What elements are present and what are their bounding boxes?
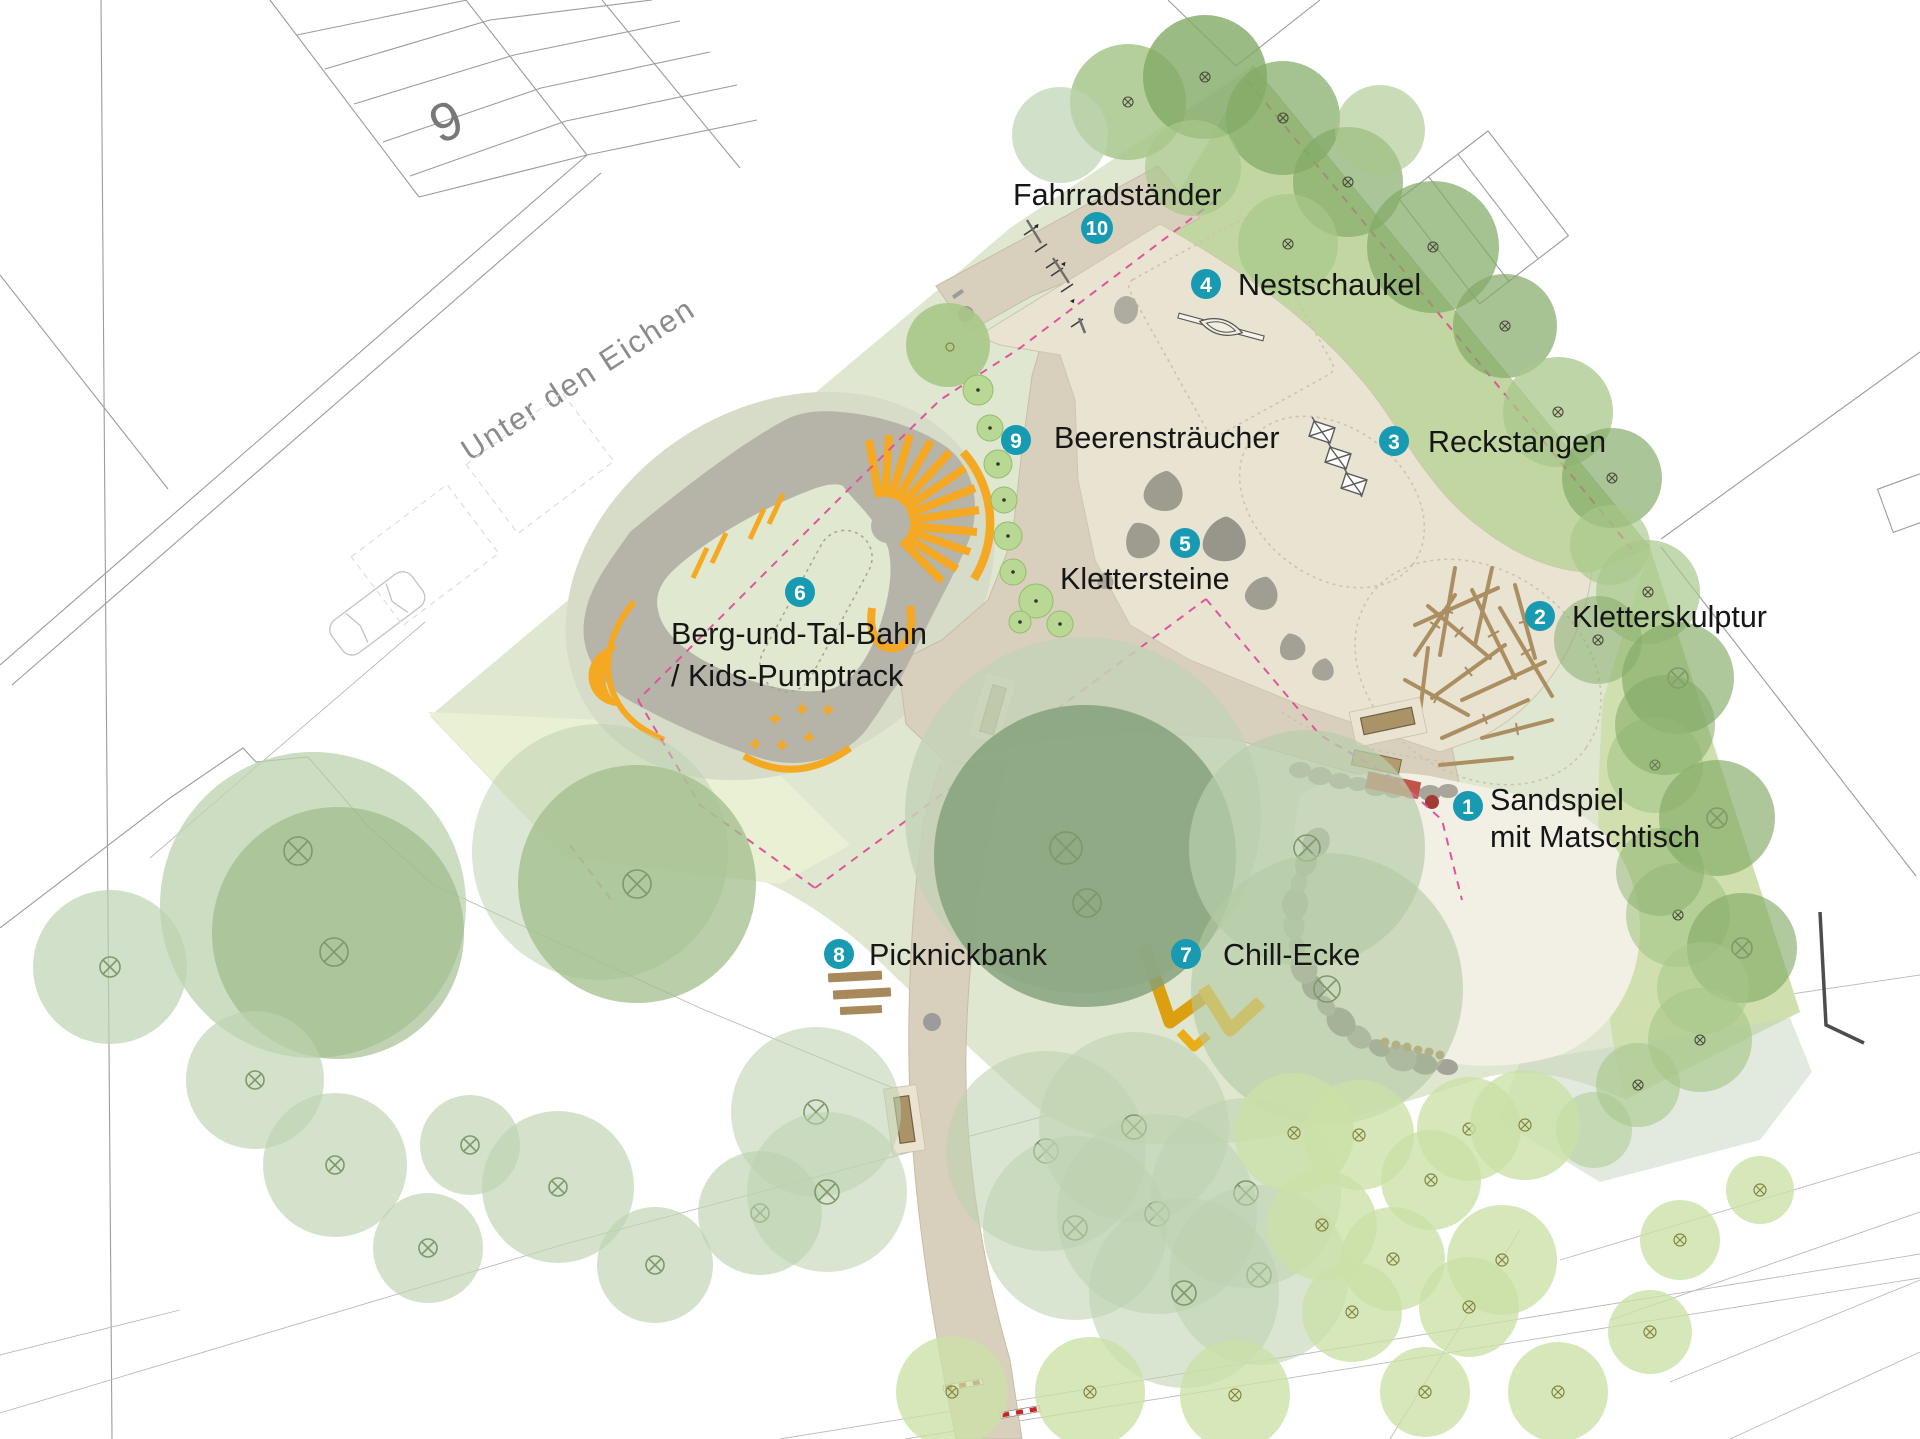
- svg-text:Fahrradständer: Fahrradständer: [1013, 178, 1222, 212]
- svg-text:Sandspiel: Sandspiel: [1490, 783, 1624, 817]
- svg-text:4: 4: [1200, 274, 1212, 297]
- svg-text:2: 2: [1534, 606, 1546, 629]
- svg-text:3: 3: [1388, 431, 1400, 454]
- svg-text:Klettersteine: Klettersteine: [1060, 562, 1230, 596]
- svg-text:6: 6: [794, 582, 806, 605]
- svg-text:8: 8: [833, 944, 845, 967]
- svg-text:Nestschaukel: Nestschaukel: [1238, 268, 1421, 302]
- svg-text:9: 9: [1010, 430, 1022, 453]
- svg-text:/ Kids-Pumptrack: / Kids-Pumptrack: [671, 659, 904, 693]
- svg-text:1: 1: [1462, 796, 1474, 819]
- svg-text:Chill-Ecke: Chill-Ecke: [1223, 938, 1360, 972]
- svg-text:Berg-und-Tal-Bahn: Berg-und-Tal-Bahn: [671, 617, 927, 651]
- svg-text:Reckstangen: Reckstangen: [1428, 425, 1606, 459]
- svg-text:Beerensträucher: Beerensträucher: [1054, 421, 1280, 455]
- svg-text:5: 5: [1179, 533, 1191, 556]
- svg-text:Kletterskulptur: Kletterskulptur: [1572, 600, 1767, 634]
- svg-text:Picknickbank: Picknickbank: [869, 938, 1048, 972]
- svg-text:7: 7: [1180, 944, 1192, 967]
- svg-text:mit Matschtisch: mit Matschtisch: [1490, 820, 1700, 854]
- svg-text:10: 10: [1086, 218, 1108, 240]
